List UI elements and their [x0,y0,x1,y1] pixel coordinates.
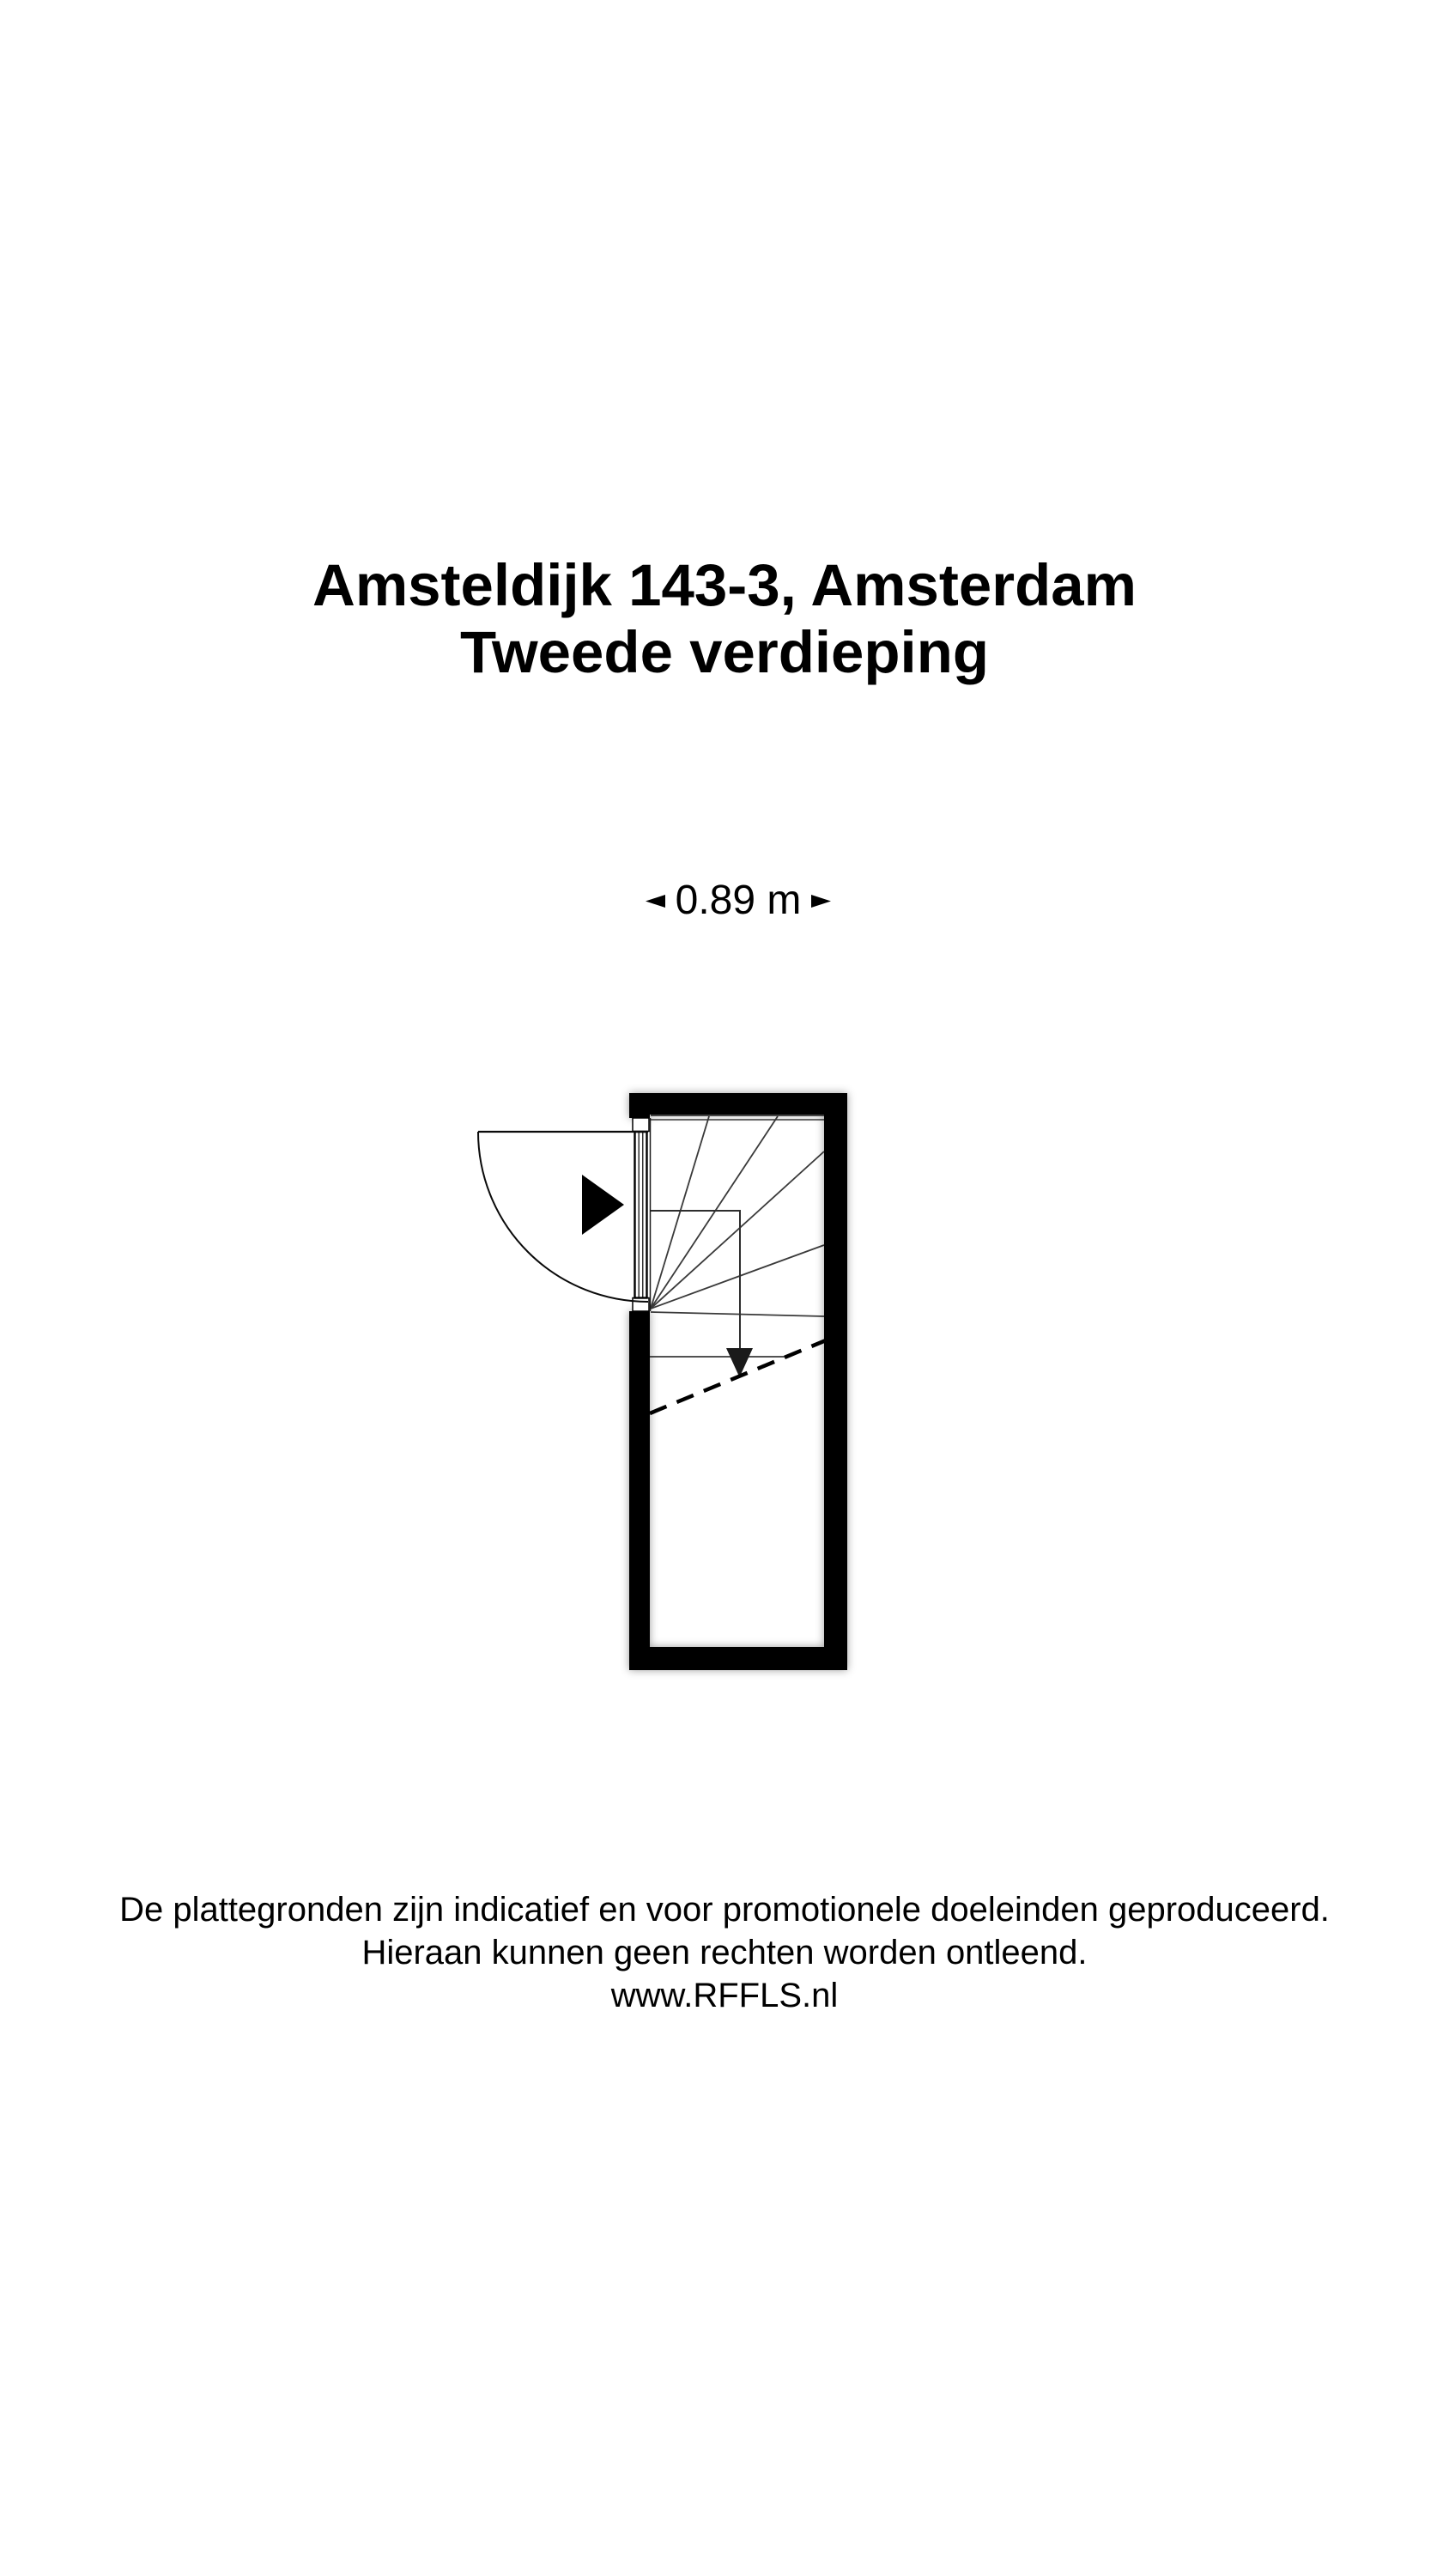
entrance-arrow-icon [582,1175,624,1235]
door-jamb-top [633,1118,649,1132]
page-title: Amsteldijk 143-3, Amsterdam Tweede verdi… [0,552,1449,686]
floorplan-page: Amsteldijk 143-3, Amsterdam Tweede verdi… [0,0,1449,2576]
disclaimer-line2: Hieraan kunnen geen rechten worden ontle… [0,1931,1449,1974]
floorplan-drawing [464,1082,858,1683]
stair-treads [650,1115,824,1357]
footer-disclaimer: De plattegronden zijn indicatief en voor… [0,1888,1449,2017]
dimension-annotation: 0.89 m [464,878,1013,923]
dimension-right-arrow-icon [811,895,831,908]
page-title-line2: Tweede verdieping [0,619,1449,686]
dimension-left-arrow-icon [646,895,665,908]
disclaimer-line1: De plattegronden zijn indicatief en voor… [0,1888,1449,1931]
door-jamb-bottom [633,1298,649,1312]
door [478,1118,651,1311]
walls [629,1093,847,1670]
floorplan-svg [464,1082,858,1683]
door-swing-arc [478,1132,648,1302]
stairs-down-arrow-icon [726,1348,753,1377]
footer-website: www.RFFLS.nl [0,1974,1449,2017]
page-title-line1: Amsteldijk 143-3, Amsterdam [0,552,1449,619]
door-frame [635,1132,647,1298]
dimension-label: 0.89 m [676,878,802,923]
